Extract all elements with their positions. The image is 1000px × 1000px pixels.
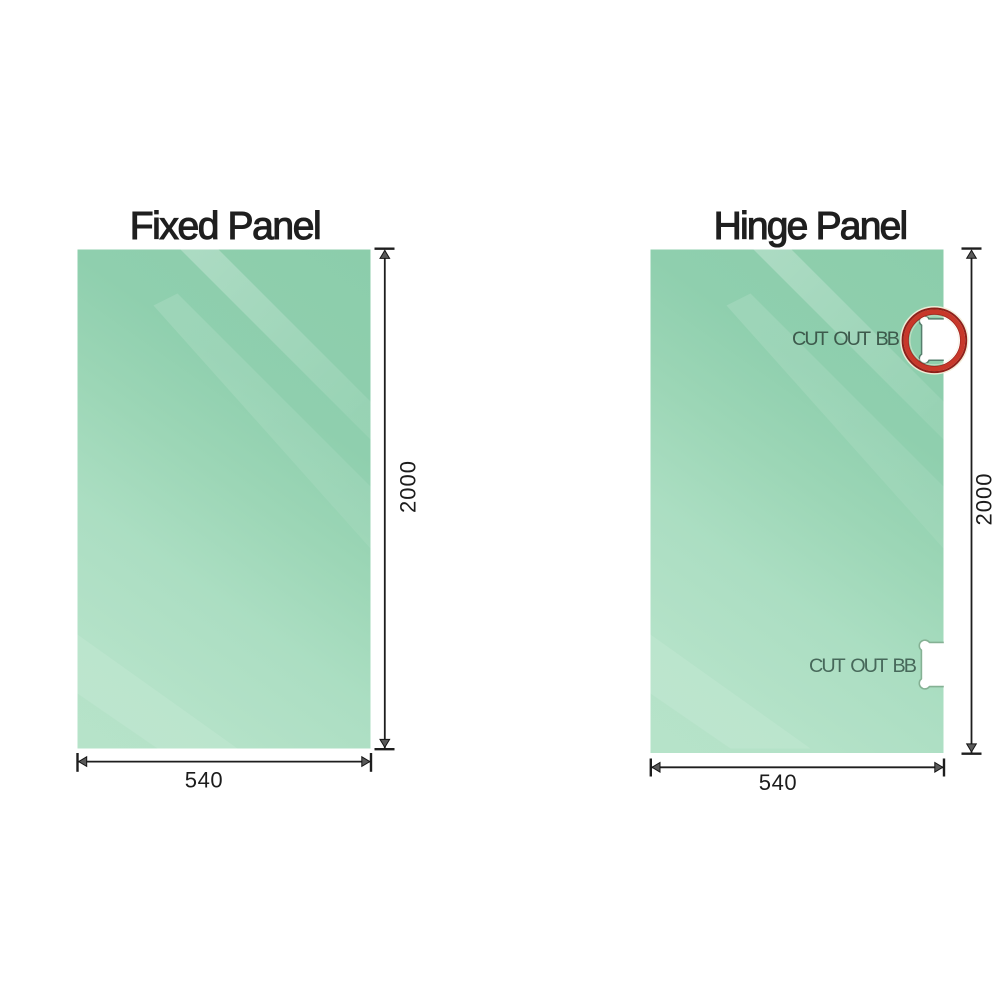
svg-text:Hinge Panel: Hinge Panel	[714, 205, 907, 248]
svg-text:540: 540	[185, 768, 224, 793]
svg-text:540: 540	[759, 770, 798, 795]
svg-text:2000: 2000	[395, 460, 420, 513]
svg-text:2000: 2000	[972, 473, 997, 526]
svg-text:CUT OUT BB: CUT OUT BB	[792, 328, 900, 350]
svg-text:CUT OUT BB: CUT OUT BB	[809, 655, 917, 677]
svg-text:Fixed Panel: Fixed Panel	[130, 205, 321, 248]
